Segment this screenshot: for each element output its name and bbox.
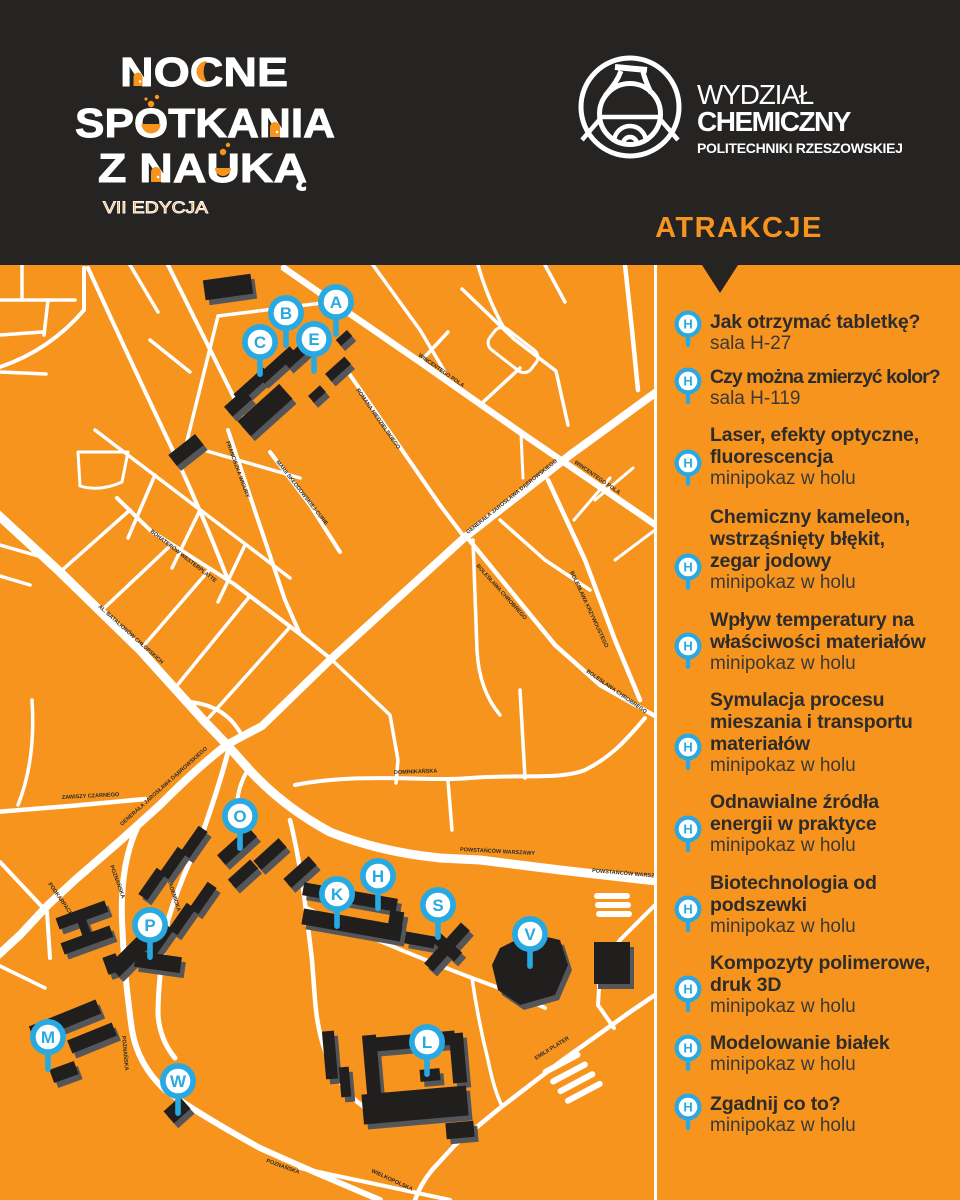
- svg-text:H: H: [683, 1041, 692, 1056]
- svg-text:P: P: [144, 916, 155, 935]
- svg-text:A: A: [330, 293, 342, 312]
- svg-text:B: B: [280, 304, 292, 323]
- svg-text:H: H: [683, 822, 692, 837]
- svg-text:H: H: [683, 1100, 692, 1115]
- svg-text:E: E: [308, 330, 319, 349]
- svg-text:H: H: [372, 867, 384, 886]
- svg-text:H: H: [683, 740, 692, 755]
- svg-text:L: L: [422, 1033, 432, 1052]
- svg-text:H: H: [683, 560, 692, 575]
- svg-text:V: V: [524, 925, 536, 944]
- svg-text:H: H: [683, 374, 692, 389]
- svg-text:S: S: [432, 896, 443, 915]
- svg-text:H: H: [683, 982, 692, 997]
- svg-text:SPOTKANIA: SPOTKANIA: [75, 100, 335, 146]
- svg-text:O: O: [233, 807, 246, 826]
- svg-text:H: H: [683, 456, 692, 471]
- svg-text:C: C: [254, 333, 266, 352]
- svg-text:H: H: [683, 902, 692, 917]
- svg-text:VII EDYCJA: VII EDYCJA: [103, 198, 209, 217]
- svg-text:H: H: [683, 639, 692, 654]
- svg-text:K: K: [331, 885, 344, 904]
- svg-text:M: M: [41, 1028, 55, 1047]
- svg-text:NOCNE: NOCNE: [120, 49, 288, 95]
- svg-text:H: H: [683, 317, 692, 332]
- svg-text:Z NAUKĄ: Z NAUKĄ: [98, 145, 307, 191]
- svg-text:W: W: [170, 1072, 187, 1091]
